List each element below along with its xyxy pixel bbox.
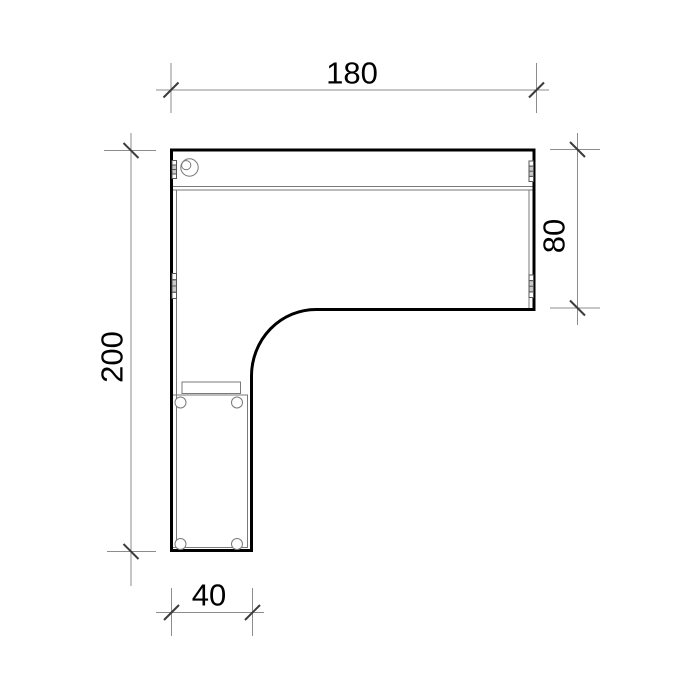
connector-fitting-left-bottom: [172, 274, 177, 299]
caster-wheel-bottom-left: [175, 539, 186, 550]
dim-label-right-depth: 80: [539, 219, 570, 253]
dim-label-bottom-width: 40: [192, 580, 226, 611]
connector-fitting-left-top: [172, 161, 177, 179]
caster-wheel-top-right: [232, 397, 243, 408]
drawer-handle: [182, 382, 241, 394]
connector-fitting-right-top: [529, 161, 534, 182]
desk-outline: [172, 150, 535, 551]
desk-outline-group: [172, 150, 535, 551]
caster-wheel-top-left: [175, 397, 186, 408]
drawing-canvas: 180 80 200 40: [0, 0, 700, 700]
connector-fitting-right-bottom: [529, 275, 534, 298]
dim-label-left-depth: 200: [97, 331, 128, 383]
caster-wheel-bottom-right: [232, 539, 243, 550]
dim-label-top-width: 180: [326, 58, 378, 89]
